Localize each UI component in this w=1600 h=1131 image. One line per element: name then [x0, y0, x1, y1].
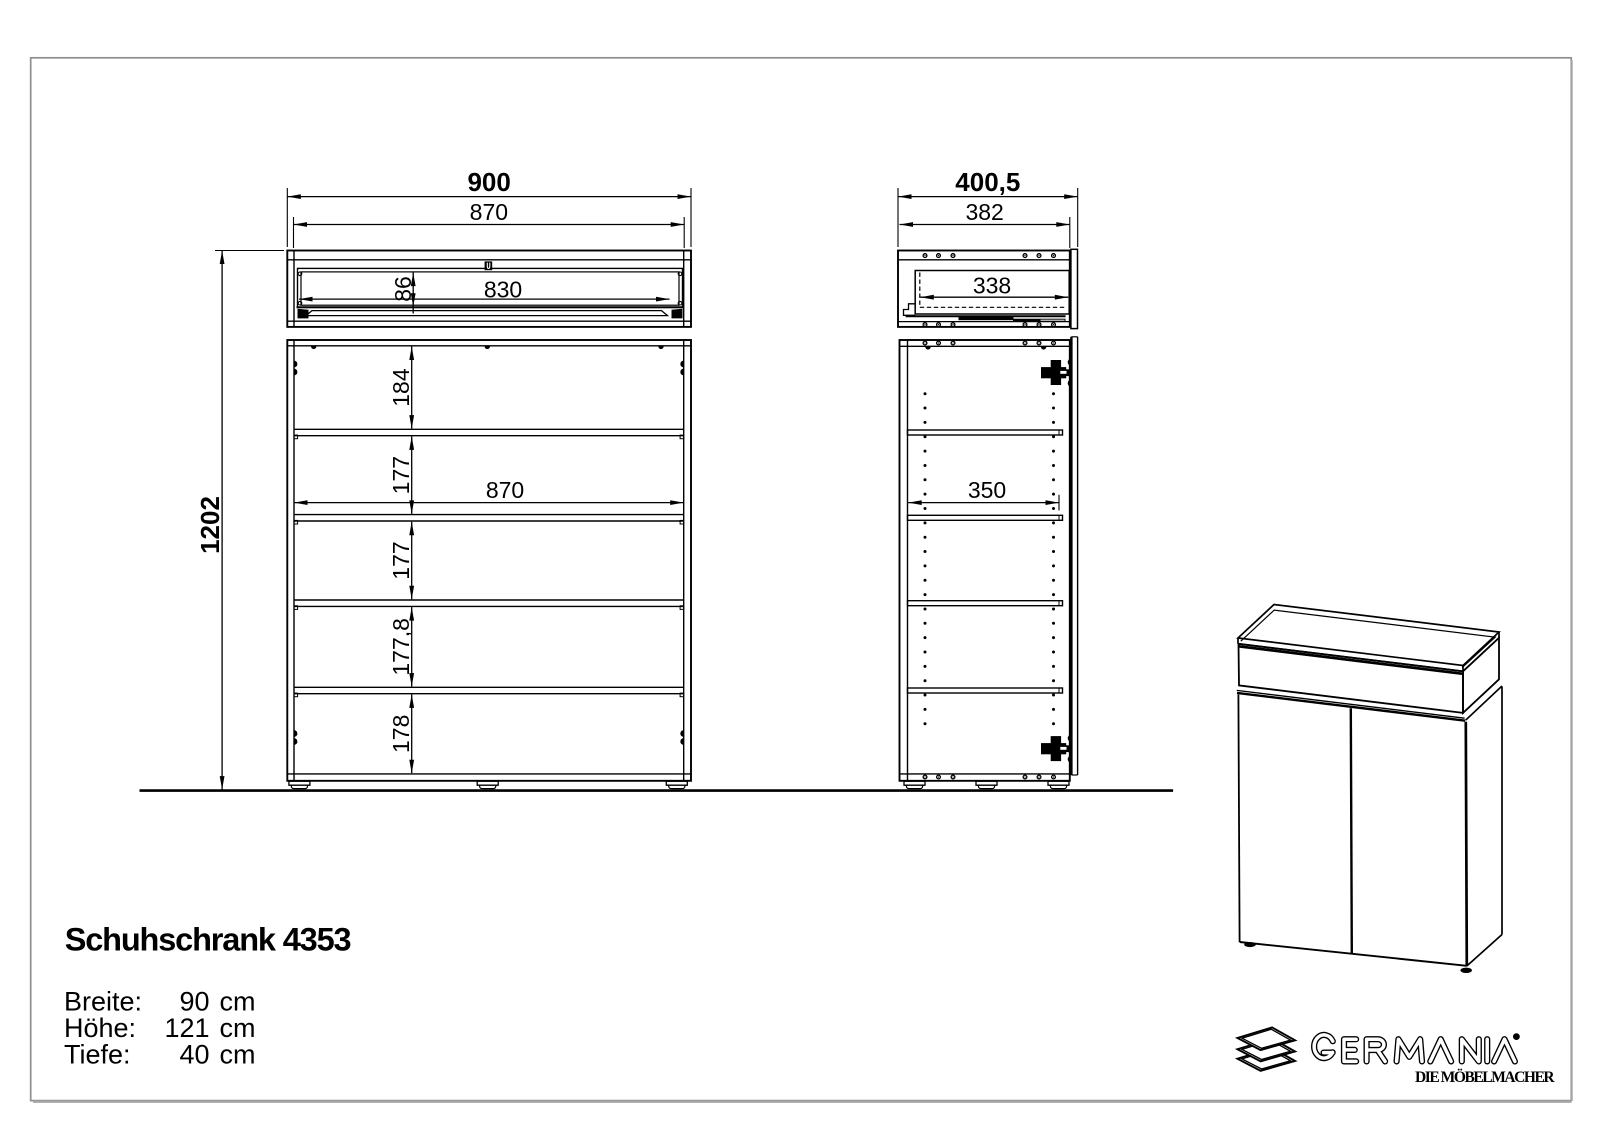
svg-text:cm: cm	[220, 986, 256, 1016]
svg-text:Schuhschrank 4353: Schuhschrank 4353	[65, 922, 351, 958]
svg-text:DIE MÖBELMACHER: DIE MÖBELMACHER	[1415, 1069, 1556, 1086]
svg-text:338: 338	[973, 273, 1011, 299]
svg-text:900: 900	[467, 167, 510, 197]
svg-text:Höhe:: Höhe:	[64, 1013, 136, 1043]
svg-text:cm: cm	[220, 1040, 256, 1070]
svg-text:177: 177	[388, 456, 414, 494]
svg-text:350: 350	[968, 477, 1006, 503]
svg-text:1202: 1202	[195, 496, 225, 554]
svg-text:Breite:: Breite:	[64, 986, 142, 1016]
svg-text:184: 184	[388, 368, 414, 407]
svg-text:cm: cm	[220, 1013, 256, 1043]
svg-text:177: 177	[388, 541, 414, 579]
svg-text:40: 40	[179, 1040, 209, 1070]
svg-text:121: 121	[164, 1013, 209, 1043]
svg-text:870: 870	[470, 199, 508, 225]
svg-text:178: 178	[388, 715, 414, 753]
svg-text:177,8: 177,8	[388, 618, 414, 676]
svg-text:830: 830	[484, 276, 522, 302]
svg-text:90: 90	[179, 986, 209, 1016]
svg-text:870: 870	[486, 477, 524, 503]
svg-text:86: 86	[390, 276, 416, 302]
svg-text:400,5: 400,5	[955, 167, 1020, 197]
svg-text:382: 382	[965, 199, 1003, 225]
svg-text:Tiefe:: Tiefe:	[64, 1040, 131, 1070]
